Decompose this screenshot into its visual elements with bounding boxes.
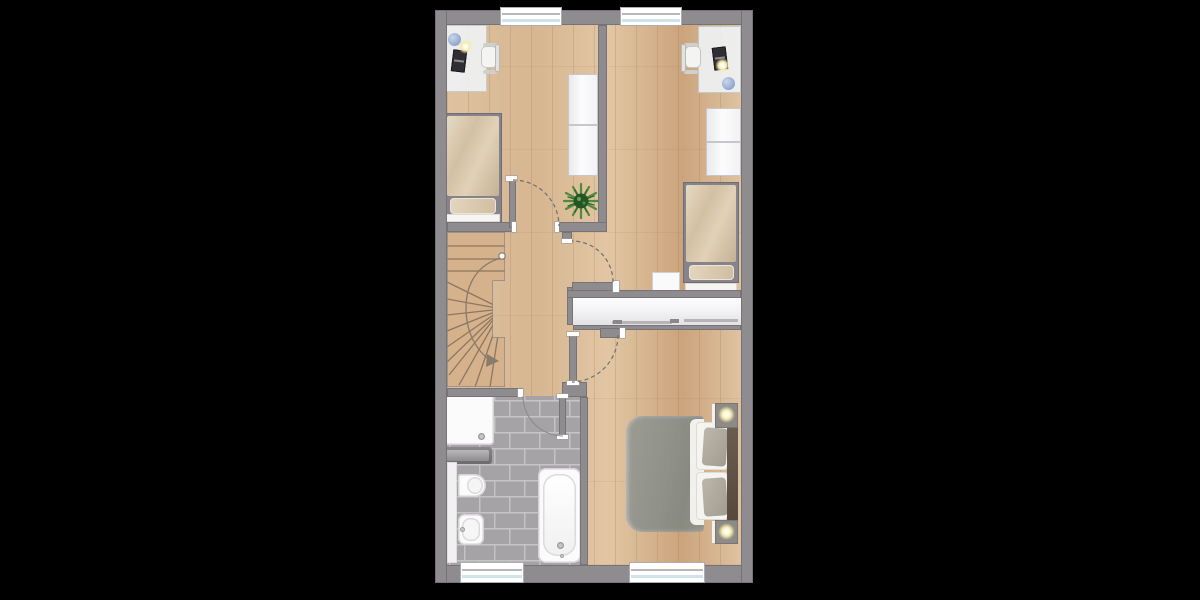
window-bedroom2	[621, 8, 681, 25]
window-master	[630, 563, 704, 582]
bedroom2-blue-decor	[722, 77, 735, 90]
bedroom1-bed-pillow	[450, 198, 496, 214]
bedroom2-chair-arm-bot	[684, 70, 698, 74]
door-cap-master-bottom	[567, 381, 579, 385]
door-cap-bathroom-bottom	[557, 435, 568, 439]
bedroom2-wardrobe-divider	[706, 141, 741, 143]
screenshot-canvas	[0, 0, 1200, 600]
door-jamb-bedroom1-west	[512, 222, 516, 232]
wall-bathroom-east	[580, 397, 588, 565]
bedroom2-chair-seat	[685, 46, 701, 68]
bedroom1-desk-lamp	[458, 39, 473, 54]
bedroom1-bed-duvet	[447, 116, 499, 196]
bath-tub-faucet	[560, 554, 564, 558]
wall-mid-bedrooms	[598, 25, 607, 232]
wall-closet-top	[567, 290, 741, 298]
door-leaf-bedroom2	[572, 282, 615, 291]
master-lamp-2	[718, 523, 735, 540]
wall-right	[741, 10, 753, 583]
bath-shower-tray	[444, 394, 494, 445]
bedroom2-desk-lamp	[715, 58, 730, 73]
bath-bidet-drain	[460, 527, 465, 532]
master-pillow-gray-2	[702, 477, 729, 517]
master-lamp-1	[718, 406, 735, 423]
bedroom2-bed-pillow	[689, 265, 734, 280]
window-bathroom	[461, 563, 523, 582]
bedroom2-chair-back	[681, 44, 686, 72]
wall-top	[435, 10, 753, 25]
closet-handle-1	[613, 320, 622, 324]
door-jamb-bedroom1-east	[555, 222, 559, 232]
door-cap-bedroom2-end	[613, 281, 619, 292]
bath-radiator-inner	[446, 450, 489, 461]
wall-bathroom-north	[447, 388, 523, 397]
bath-shower-drain	[478, 433, 485, 440]
bedroom1-bed-foot	[446, 214, 500, 222]
wall-closet-bottom-bar	[600, 328, 622, 338]
wall-bedroom1-south-west	[447, 222, 516, 232]
door-leaf-bedroom1	[509, 178, 516, 228]
door-cap-master-top	[567, 332, 579, 336]
door-jamb-bedroom2-top	[562, 239, 572, 243]
wall-bedroom1-south-east	[559, 222, 607, 232]
door-leaf-bathroom	[559, 396, 566, 437]
bath-tub-drain	[557, 542, 564, 549]
winder-staircase	[447, 232, 505, 387]
door-cap-bedroom1-top	[506, 176, 517, 181]
closet-handle-2	[670, 319, 679, 323]
window-bedroom1	[501, 8, 561, 25]
wall-closet-bottom	[573, 325, 741, 330]
door-leaf-master	[569, 334, 577, 383]
bath-side-shelf	[447, 462, 457, 563]
bath-toilet-seat	[467, 477, 483, 494]
bedroom2-bed-duvet	[686, 185, 736, 262]
bedroom1-wardrobe-divider	[568, 124, 598, 126]
door-cap-closet-bar	[620, 328, 625, 338]
closet-sliding-line-2	[684, 319, 738, 322]
door-jamb-bathroom	[518, 389, 523, 397]
bedroom1-chair-back	[495, 44, 500, 72]
door-cap-bathroom-top	[557, 394, 568, 398]
wall-left	[435, 10, 447, 583]
floor-plan	[435, 10, 753, 583]
master-pillow-gray-1	[702, 427, 729, 467]
master-headboard	[727, 424, 738, 520]
